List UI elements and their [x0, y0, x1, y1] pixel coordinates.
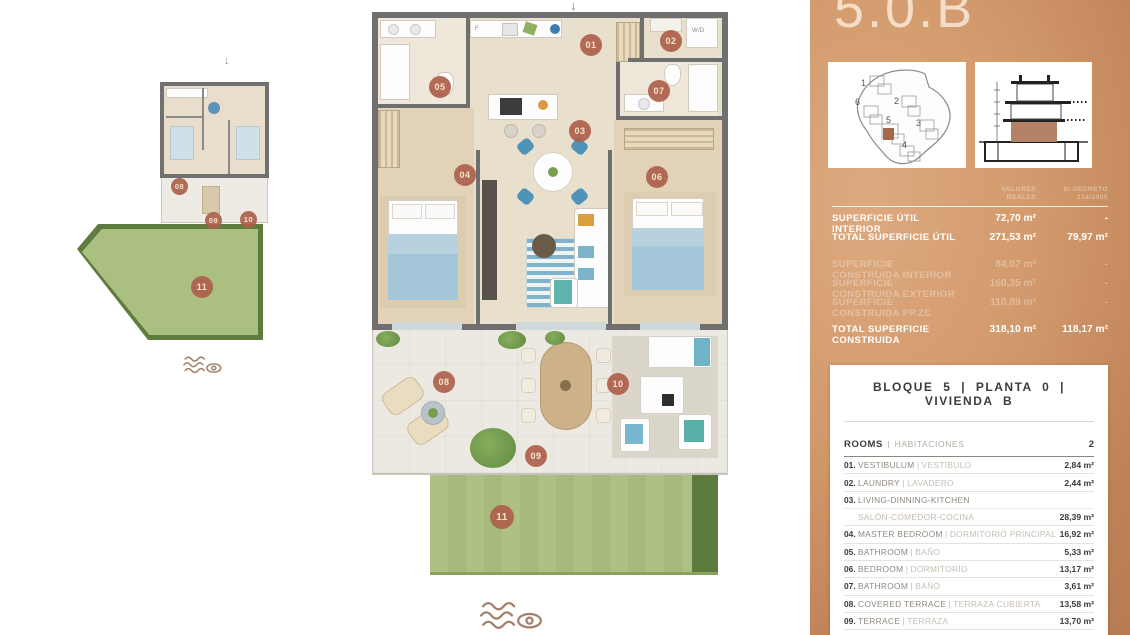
- wave-eye-logo: [478, 598, 546, 632]
- unit-title: 5.0.B: [834, 0, 975, 40]
- sink-icon: [388, 24, 399, 35]
- room-badge-08: 08: [433, 371, 455, 393]
- room-badge-03: 03: [569, 120, 591, 142]
- stool-icon: [532, 124, 546, 138]
- pillow-icon: [392, 204, 422, 219]
- sliding-door: [392, 322, 462, 330]
- section-thumbnail: [975, 62, 1092, 168]
- mini-bed: [170, 126, 194, 160]
- svg-text:2: 2: [894, 96, 899, 106]
- chair-icon: [596, 348, 611, 363]
- room-badge-08: 08: [171, 178, 188, 195]
- chair-icon: [521, 408, 536, 423]
- room-row: 09. TERRACE | TERRAZA 13,70 m²: [844, 613, 1094, 630]
- room-row: 01. VESTIBULUM | VESTÍBULO 2,84 m²: [844, 457, 1094, 474]
- chair-icon: [521, 378, 536, 393]
- surface-table: VALORESREALES S/ DECRETO218/2005 SUPERFI…: [832, 186, 1108, 343]
- room-badge-09: 09: [525, 445, 547, 467]
- plant-icon: [428, 408, 438, 418]
- wall: [378, 104, 470, 108]
- room-badge-02: 02: [660, 30, 682, 52]
- surface-table-header: VALORESREALES S/ DECRETO218/2005: [832, 186, 1108, 202]
- shower-icon: [380, 44, 410, 100]
- blanket-icon: [388, 234, 458, 300]
- rooms-header-row: ROOMS | HABITACIONES 2: [844, 434, 1094, 457]
- mini-wall: [166, 116, 202, 118]
- kitchen-sink-icon: [502, 23, 518, 36]
- pillow-icon: [425, 204, 455, 219]
- room-badge-09: 09: [205, 212, 222, 229]
- floor-plan-area: ↓ 08 09 10 11: [0, 0, 810, 635]
- site-plan-drawing: 1 2 3 4 5 6: [828, 62, 966, 168]
- sliding-door: [516, 322, 606, 330]
- wall: [466, 18, 470, 108]
- pillow-icon: [671, 202, 703, 216]
- col-valores-reales: VALORESREALES: [960, 186, 1036, 202]
- rooms-count: 2: [1089, 439, 1094, 450]
- mini-bed: [236, 126, 260, 160]
- cushion-icon: [578, 214, 594, 226]
- surface-row: TOTAL SUPERFICIE CONSTRUIDA 318,10 m² 11…: [832, 324, 1108, 343]
- chair-icon: [596, 408, 611, 423]
- brochure-page: ↓ 08 09 10 11: [0, 0, 1130, 635]
- room-badge-11: 11: [490, 505, 514, 529]
- cushion-icon: [625, 424, 643, 444]
- svg-text:5: 5: [886, 115, 891, 125]
- wall: [476, 150, 480, 324]
- shrub-icon: [376, 331, 400, 347]
- blanket-icon: [632, 228, 704, 290]
- mini-wall: [202, 88, 204, 150]
- shower-icon: [688, 64, 718, 112]
- room-row: 10. COVERED TERRACE | TERRAZA CUBIERTA 1…: [844, 630, 1094, 635]
- room-row: 08. COVERED TERRACE | TERRAZA CUBIERTA 1…: [844, 596, 1094, 613]
- room-row: 05. BATHROOM | BAÑO 5,33 m²: [844, 544, 1094, 561]
- divider: [844, 421, 1094, 422]
- unit-card-header: BLOQUE 5 | PLANTA 0 | VIVIENDA B: [844, 380, 1094, 408]
- site-plan-thumbnail: 1 2 3 4 5 6: [828, 62, 966, 168]
- room-row: 06. BEDROOM | DORMITORIO 13,17 m²: [844, 561, 1094, 578]
- divider: [832, 206, 1108, 207]
- tv-unit-icon: [482, 180, 497, 300]
- room-badge-10: 10: [607, 373, 629, 395]
- wall: [608, 150, 612, 324]
- room-badge-07: 07: [648, 80, 670, 102]
- mini-outdoor-table: [202, 186, 220, 214]
- unit-card: BLOQUE 5 | PLANTA 0 | VIVIENDA B ROOMS |…: [830, 365, 1108, 635]
- section-drawing: [975, 62, 1092, 168]
- svg-text:3: 3: [916, 118, 921, 128]
- room-badge-05: 05: [429, 76, 451, 98]
- surface-row: SUPERFICIE CONSTRUIDA INTERIOR 84,07 m² …: [832, 259, 1108, 278]
- towel-icon: [694, 338, 710, 366]
- wardrobe-icon: [616, 22, 640, 62]
- sink-icon: [410, 24, 421, 35]
- tray-icon: [662, 394, 674, 406]
- wardrobe-icon: [378, 110, 400, 168]
- sliding-door: [640, 322, 700, 330]
- mini-wall: [228, 120, 230, 174]
- plant-icon: [548, 167, 558, 177]
- shrub-icon: [470, 428, 516, 468]
- highlighted-floor: [1011, 122, 1057, 142]
- cushion-icon: [578, 268, 594, 280]
- garden-polygon: [77, 224, 263, 340]
- wall: [616, 116, 722, 120]
- cushion-icon: [578, 246, 594, 258]
- cushion-icon: [684, 420, 704, 442]
- chair-icon: [521, 348, 536, 363]
- wave-eye-logo: [182, 354, 224, 375]
- towel-icon: [554, 280, 572, 304]
- pot-icon: [550, 24, 560, 34]
- wardrobe-icon: [624, 128, 714, 150]
- table-center-icon: [560, 380, 571, 391]
- north-arrow-icon: ↓: [570, 0, 577, 12]
- north-arrow-icon: ↓: [224, 56, 230, 67]
- shrub-icon: [498, 331, 526, 349]
- room-row: 07. BATHROOM | BAÑO 3,61 m²: [844, 578, 1094, 595]
- sink-icon: [638, 98, 650, 110]
- wall: [640, 18, 644, 62]
- svg-text:1: 1: [861, 78, 866, 88]
- svg-text:4: 4: [902, 140, 907, 150]
- surface-row: SUPERFICIE CONSTRUIDA EXTERIOR 160,35 m²…: [832, 278, 1108, 297]
- room-row: 03. LIVING-DINNING-KITCHEN SALÓN-COMEDOR…: [844, 492, 1094, 526]
- room-row: 04. MASTER BEDROOM | DORMITORIO PRINCIPA…: [844, 526, 1094, 543]
- highlighted-block: [883, 128, 894, 140]
- surface-row: SUPERFICIE ÚTIL INTERIOR 72,70 m² -: [832, 213, 1108, 232]
- wd-label: W/D: [692, 28, 705, 34]
- room-badge-04: 04: [454, 164, 476, 186]
- bowl-icon: [538, 100, 548, 110]
- cooktop-icon: [500, 98, 522, 115]
- col-decreto: S/ DECRETO218/2005: [1040, 186, 1108, 202]
- hedge-icon: [692, 475, 718, 575]
- fridge-label: F: [475, 26, 479, 32]
- wall: [616, 62, 620, 120]
- room-badge-01: 01: [580, 34, 602, 56]
- mini-table: [208, 102, 220, 114]
- room-badge-06: 06: [646, 166, 668, 188]
- room-badge-10: 10: [240, 211, 257, 228]
- garden-strip: [430, 475, 718, 575]
- room-badge-11: 11: [191, 276, 213, 298]
- hedge-icon: [430, 572, 718, 575]
- mini-floor-plan: [160, 82, 269, 178]
- wall: [628, 58, 722, 62]
- pillow-icon: [636, 202, 668, 216]
- shrub-icon: [545, 331, 565, 345]
- info-panel: 5.0.B 1 2 3 4 5: [810, 0, 1130, 635]
- coffee-table-icon: [532, 234, 556, 258]
- surface-row: SUPERFICIE CONSTRUIDA PP.ZC 110,89 m² -: [832, 297, 1108, 316]
- surface-row: TOTAL SUPERFICIE ÚTIL 271,53 m² 79,97 m²: [832, 232, 1108, 251]
- room-row: 02. LAUNDRY | LAVADERO 2,44 m²: [844, 474, 1094, 491]
- stool-icon: [504, 124, 518, 138]
- garden-grass: [82, 229, 258, 335]
- svg-text:6: 6: [855, 97, 860, 107]
